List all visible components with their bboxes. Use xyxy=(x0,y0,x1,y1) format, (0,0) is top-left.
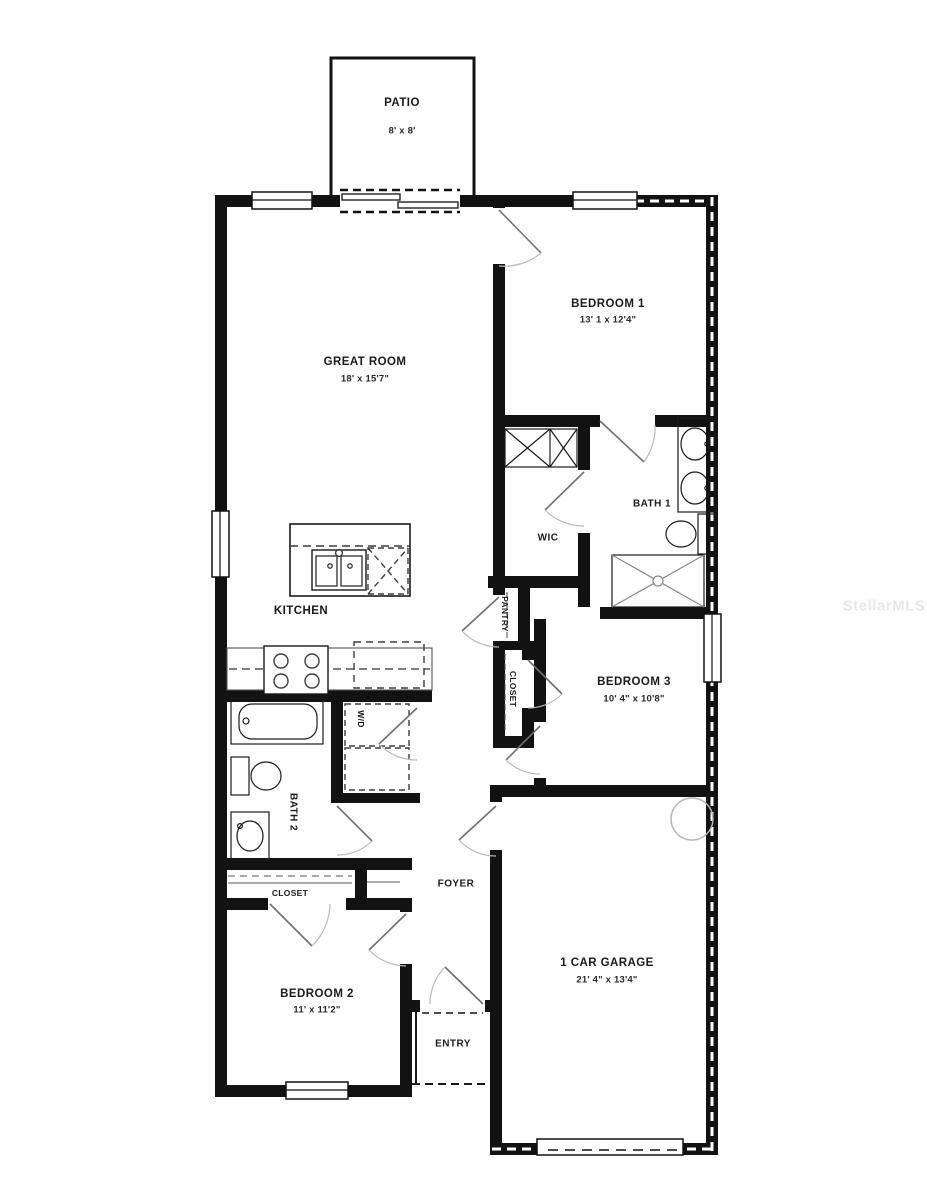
great-room-label: GREAT ROOM xyxy=(324,356,407,368)
garage-dims: 21' 4" x 13'4" xyxy=(576,975,637,986)
door-leaf-bath2 xyxy=(337,806,372,841)
wall-wic-right-b xyxy=(578,533,590,607)
wall-pantry-bottom xyxy=(493,641,534,650)
kitchen-label: KITCHEN xyxy=(274,605,328,617)
garage-door xyxy=(537,1139,683,1155)
kitchen-counter xyxy=(227,642,432,694)
wall-pantry-right xyxy=(518,588,530,643)
door-leaf-pantry xyxy=(462,597,499,631)
kitchen-island xyxy=(290,524,410,596)
bath1-shower xyxy=(612,555,704,607)
wall-front-b xyxy=(485,1000,502,1012)
door-leaf-wic xyxy=(545,472,584,510)
door-arc-wic xyxy=(545,510,584,526)
door-arc-bedroom1 xyxy=(499,253,541,266)
door-leaf-bedroom1 xyxy=(499,210,541,253)
bedroom3-label: BEDROOM 3 xyxy=(597,676,671,688)
door-arc-closet-bedroom2 xyxy=(312,904,330,946)
wall-greatroom-bedroom1-b xyxy=(493,264,505,425)
stove xyxy=(264,646,328,694)
refrigerator xyxy=(354,642,424,688)
bath2-toilet xyxy=(231,757,281,795)
linen-shelves xyxy=(505,429,577,467)
door-arc-bedroom3 xyxy=(506,760,540,774)
wall-closet-right-a xyxy=(522,650,534,660)
floorplan-page: PATIO 8' x 8' GREAT ROOM 18' x 15'7" BED… xyxy=(0,0,927,1200)
bath2-bathtub xyxy=(231,698,323,744)
wall-left xyxy=(215,195,227,1097)
bedroom2-label: BEDROOM 2 xyxy=(280,988,354,1000)
wall-bedroom1-bottom-a xyxy=(493,415,600,427)
wall-texture-dashes xyxy=(492,197,714,1153)
wall-bedroom3-left-b xyxy=(534,778,546,785)
wall-hall-left-b xyxy=(493,643,505,748)
closet-hall-label: CLOSET xyxy=(508,671,518,707)
foyer-label: FOYER xyxy=(438,879,475,890)
wall-bedroom2-right-a xyxy=(400,898,412,912)
wic-label: WIC xyxy=(538,533,559,544)
wall-wic-right-a xyxy=(578,427,590,470)
wall-bath2-right xyxy=(331,690,343,802)
door-arc-bath1 xyxy=(644,425,655,462)
window-greatroom-top xyxy=(252,192,312,209)
bedroom3-dims: 10' 4" x 10'8" xyxy=(603,694,664,705)
fixtures-group xyxy=(227,418,716,1084)
great-room-dims: 18' x 15'7" xyxy=(341,374,389,385)
wall-wd-bottom xyxy=(331,793,420,803)
entry-label: ENTRY xyxy=(435,1039,471,1050)
door-leaf-garage-service xyxy=(459,806,496,840)
wall-closet2-bottom-a xyxy=(215,898,268,910)
door-leaf-wd xyxy=(379,708,417,744)
wall-garage-top xyxy=(490,785,718,797)
closet-bedroom2-label: CLOSET xyxy=(272,888,308,898)
kitchen-sink xyxy=(312,550,366,590)
dishwasher xyxy=(368,548,408,594)
washer-dryer-units xyxy=(345,704,409,790)
patio-label: PATIO xyxy=(384,97,420,109)
washer-dryer-label: W/D xyxy=(356,710,366,727)
door-leaf-closet-bedroom2 xyxy=(270,904,312,946)
wall-greatroom-bedroom1-a xyxy=(493,195,505,208)
bath2-sink xyxy=(231,812,269,860)
window-bedroom2-bottom xyxy=(286,1082,348,1099)
door-arc-bath2 xyxy=(337,841,372,855)
pantry-label: PANTRY xyxy=(500,596,510,632)
wall-bedroom1-bottom-b xyxy=(655,415,718,427)
window-bedroom1-top xyxy=(573,192,637,209)
door-leaf-front xyxy=(445,967,483,1004)
bedroom2-dims: 11' x 11'2" xyxy=(293,1005,340,1016)
wall-hall-left-a xyxy=(493,425,505,595)
garage-label: 1 CAR GARAGE xyxy=(560,957,654,969)
bath1-label: BATH 1 xyxy=(633,499,671,510)
stellar-mls-watermark: StellarMLS xyxy=(843,598,926,615)
window-bedroom3-right xyxy=(704,614,721,682)
closet-rods xyxy=(228,592,507,883)
door-leaf-bath1 xyxy=(600,421,644,462)
sliding-door-patio xyxy=(340,190,460,212)
bedroom1-label: BEDROOM 1 xyxy=(571,298,645,310)
door-leaf-bedroom2 xyxy=(369,914,406,950)
patio-dims: 8' x 8' xyxy=(388,126,415,137)
wall-bedroom2-right-b xyxy=(400,964,412,1097)
window-greatroom-left xyxy=(212,511,229,577)
bedroom1-dims: 13' 1 x 12'4" xyxy=(580,315,637,326)
wall-bath1-bottom xyxy=(600,607,718,619)
bath2-label: BATH 2 xyxy=(288,793,299,831)
door-arc-bedroom2 xyxy=(369,950,406,966)
door-arc-front xyxy=(430,967,445,1004)
floorplan-drawing xyxy=(0,0,927,1200)
wall-front-a xyxy=(400,1000,420,1012)
